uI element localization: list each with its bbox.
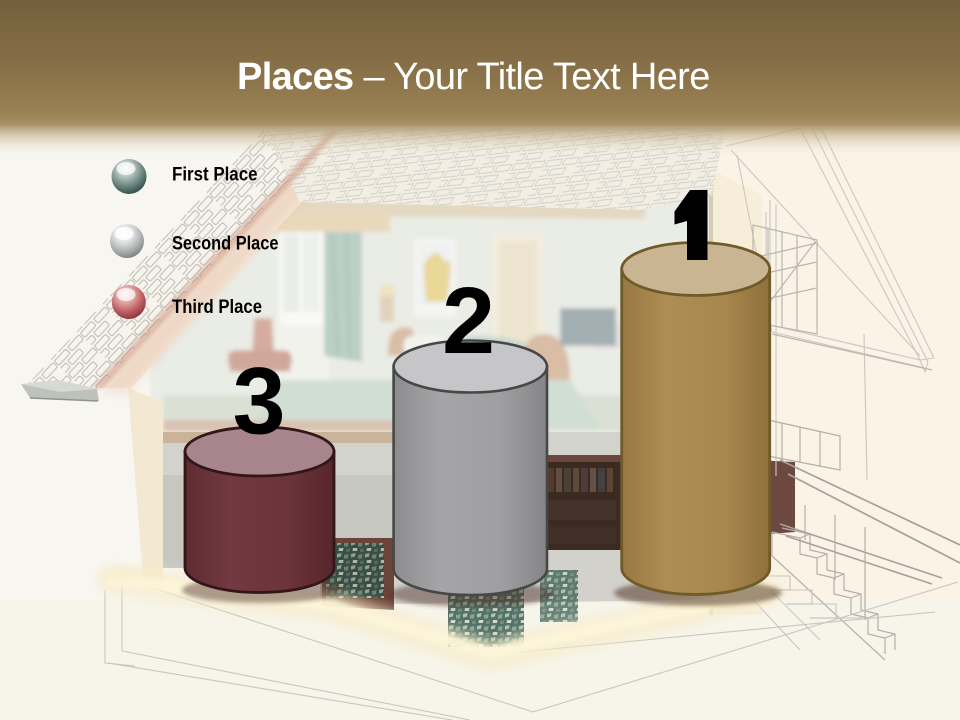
svg-text:2: 2 [442, 268, 495, 374]
svg-text:First Place: First Place [172, 164, 258, 186]
svg-text:Third Place: Third Place [172, 296, 262, 318]
svg-text:3: 3 [233, 349, 286, 455]
svg-text:Places – Your Title Text Here: Places – Your Title Text Here [237, 56, 710, 98]
svg-text:Second Place: Second Place [172, 233, 279, 255]
